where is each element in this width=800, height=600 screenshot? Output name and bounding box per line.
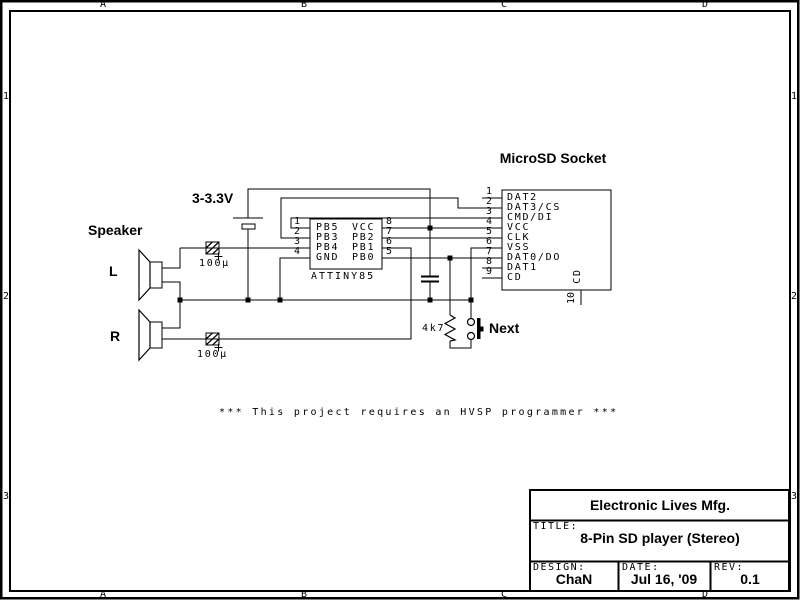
hvsp-note: *** This project requires an HVSP progra… (219, 408, 618, 418)
zone-label-bottom-d: D (701, 590, 709, 600)
chip-pin-name-pb0: PB0 (352, 253, 375, 263)
title-block-company: Electronic Lives Mfg. (531, 498, 789, 512)
title-block-rev-value: 0.1 (710, 572, 790, 586)
zone-label-top-a: A (99, 0, 107, 10)
socket-pin-name-cd: CD (507, 273, 522, 283)
supply-voltage-label: 3-3.3V (192, 191, 233, 205)
resistor-symbol (445, 315, 455, 341)
zone-label-bottom-a: A (99, 590, 107, 600)
zone-label-left-1: 1 (2, 92, 10, 102)
speaker-group-label: Speaker (88, 223, 142, 237)
speaker-right-symbol (139, 310, 162, 360)
zone-label-right-1: 1 (790, 92, 798, 102)
chip-name: ATTINY85 (311, 272, 375, 282)
title-block-design-value: ChaN (530, 572, 618, 586)
cap-right-value: 100μ (197, 350, 228, 360)
cap-left-value: 100μ (199, 259, 230, 269)
socket-pin-num-10: 10 (567, 292, 577, 304)
zone-label-top-d: D (701, 0, 709, 10)
decoupling-cap-symbol (421, 277, 439, 282)
title-block-title: 8-Pin SD player (Stereo) (531, 531, 789, 545)
socket-pin-num-9: 9 (484, 267, 494, 277)
zone-label-bottom-b: B (300, 590, 308, 600)
schematic-sheet: A B C D A B C D 1 2 3 1 2 3 3-3.3V Speak… (0, 0, 800, 600)
next-button-symbol (468, 318, 484, 340)
zone-label-right-2: 2 (790, 292, 798, 302)
zone-label-left-2: 2 (2, 292, 10, 302)
zone-label-right-3: 3 (790, 492, 798, 502)
speaker-left-label: L (109, 264, 118, 278)
resistor-value: 4k7 (422, 324, 445, 334)
zone-label-top-b: B (300, 0, 308, 10)
socket-title: MicroSD Socket (498, 151, 608, 165)
chip-pin-num-5: 5 (384, 247, 394, 257)
battery-symbol (242, 224, 255, 229)
next-button-label: Next (489, 321, 519, 335)
title-block-date-value: Jul 16, '09 (618, 572, 710, 586)
socket-pin-name-cd-bottom: CD (573, 268, 583, 283)
zone-label-bottom-c: C (500, 590, 508, 600)
zone-label-top-c: C (500, 0, 508, 10)
speaker-left-symbol (139, 250, 162, 300)
speaker-right-label: R (110, 329, 120, 343)
zone-label-left-3: 3 (2, 492, 10, 502)
chip-pin-num-4: 4 (292, 247, 302, 257)
chip-pin-name-gnd: GND (316, 253, 339, 263)
